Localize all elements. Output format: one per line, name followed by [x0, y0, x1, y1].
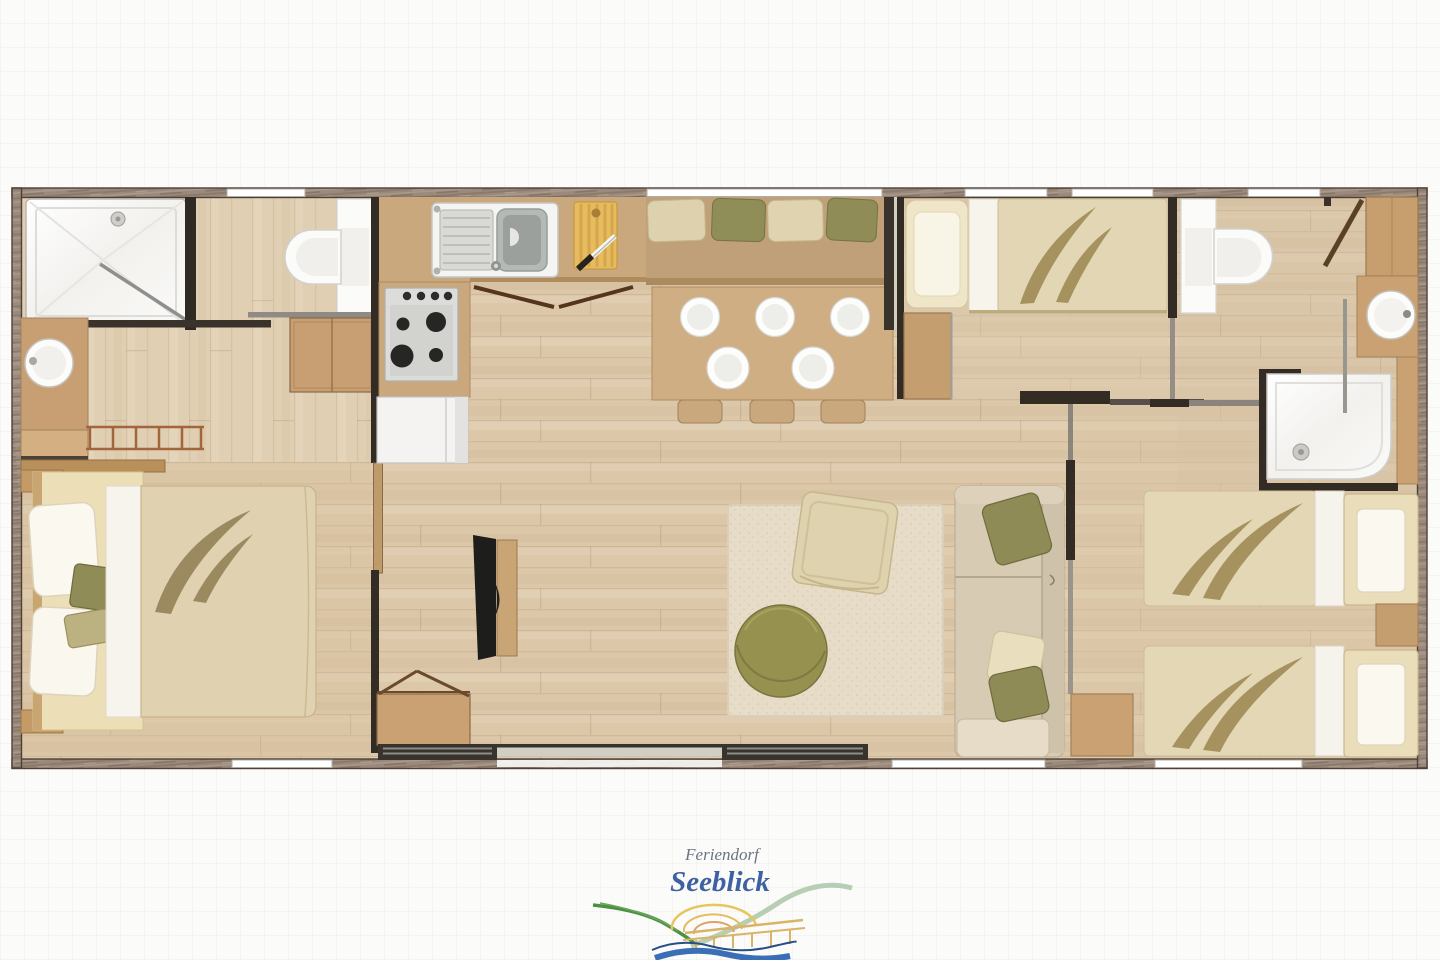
svg-text:Feriendorf: Feriendorf	[684, 845, 761, 864]
svg-text:Seeblick: Seeblick	[670, 866, 770, 898]
